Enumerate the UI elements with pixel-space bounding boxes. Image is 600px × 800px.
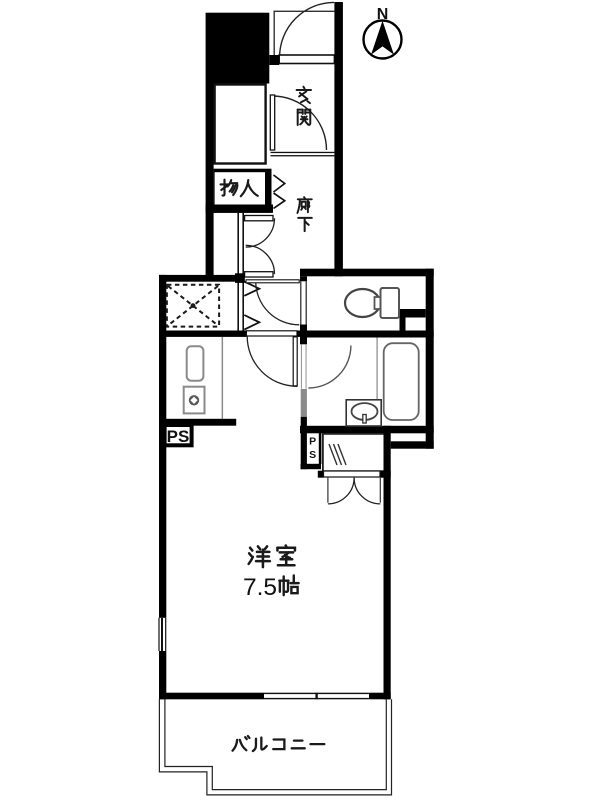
svg-text:7.5: 7.5 [243, 574, 277, 601]
svg-text:PS: PS [167, 427, 190, 446]
svg-text:N: N [377, 6, 389, 23]
svg-text:S: S [309, 449, 316, 461]
svg-text:P: P [309, 435, 316, 447]
